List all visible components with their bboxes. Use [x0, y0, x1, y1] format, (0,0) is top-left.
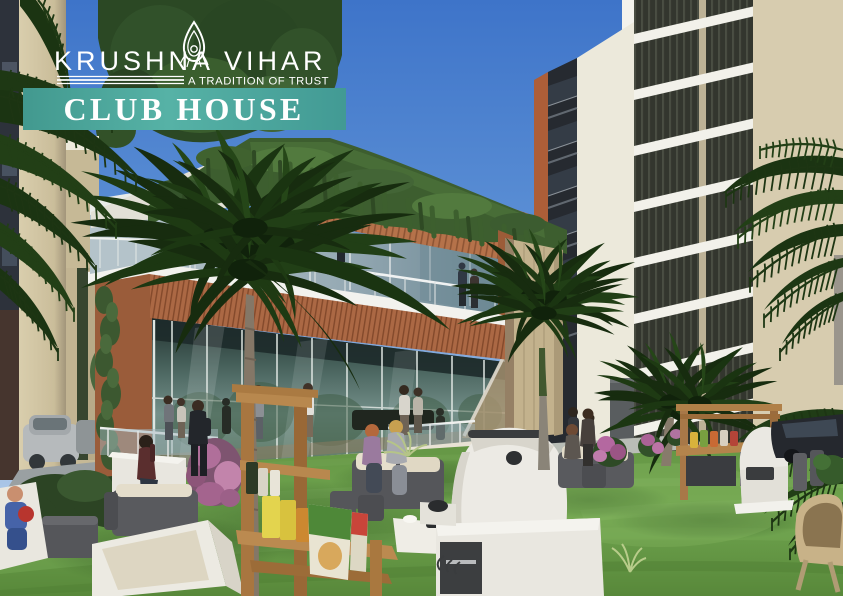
svg-text:A TRADITION OF TRUST: A TRADITION OF TRUST: [188, 76, 329, 88]
svg-text:CLUB HOUSE: CLUB HOUSE: [64, 91, 305, 127]
svg-text:KRUSHNA VIHAR: KRUSHNA VIHAR: [54, 46, 327, 76]
